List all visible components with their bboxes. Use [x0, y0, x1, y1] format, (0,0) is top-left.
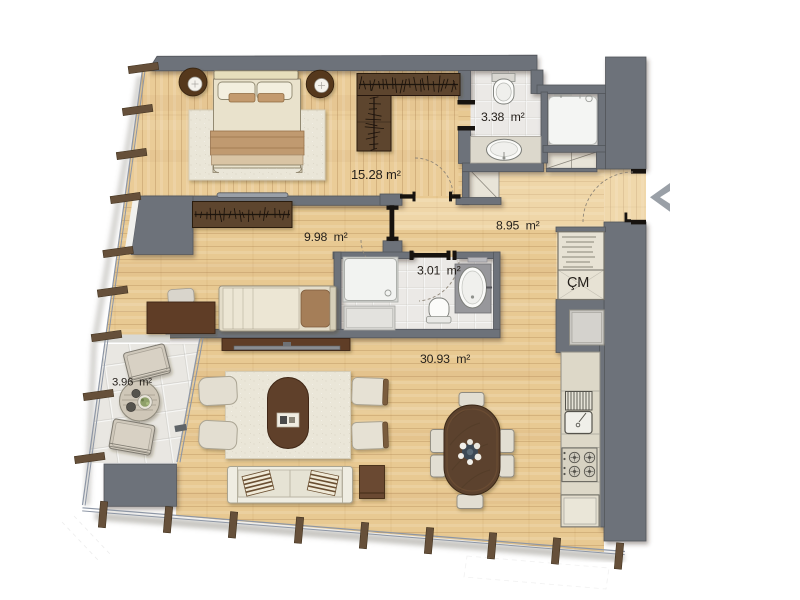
- svg-text:3.96 m²: 3.96 m²: [112, 377, 152, 389]
- svg-text:ÇM: ÇM: [567, 275, 589, 291]
- svg-text:8.95 m²: 8.95 m²: [496, 219, 540, 233]
- svg-text:3.01 m²: 3.01 m²: [417, 264, 461, 278]
- svg-text:3.38 m²: 3.38 m²: [481, 110, 525, 124]
- svg-text:15.28 m²: 15.28 m²: [351, 167, 402, 182]
- svg-text:9.98 m²: 9.98 m²: [304, 230, 348, 244]
- svg-text:30.93 m²: 30.93 m²: [420, 352, 470, 366]
